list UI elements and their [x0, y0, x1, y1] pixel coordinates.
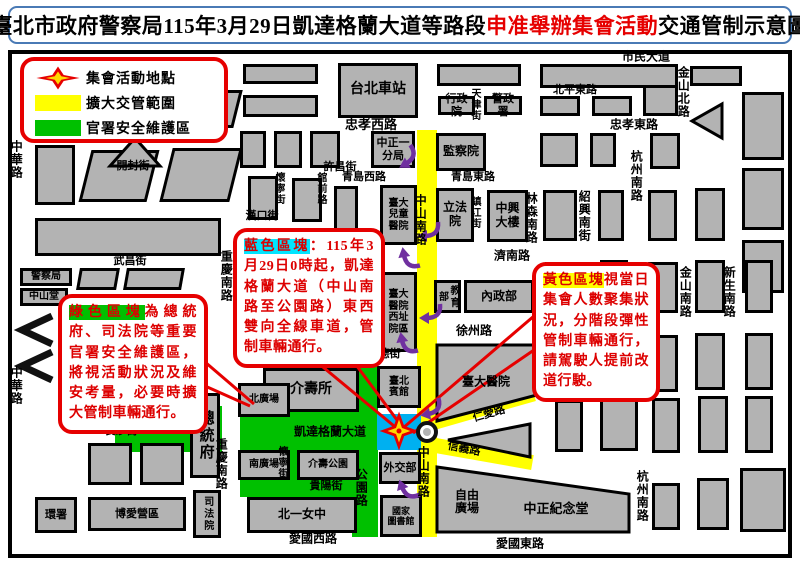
- building: [698, 396, 728, 453]
- street-label: 杭州南路: [635, 470, 648, 522]
- building-中興大樓: 中興 大樓: [487, 190, 528, 242]
- building: [140, 443, 184, 485]
- yellow-zone-callout-highlight: 黃色區塊: [543, 273, 604, 288]
- building: [697, 478, 729, 530]
- street-label: 武昌街: [114, 255, 147, 267]
- building-司法院: 司法院: [193, 490, 221, 538]
- building: [742, 168, 784, 230]
- street-label: 林森南路: [524, 192, 537, 244]
- street-label: 凱達格蘭大道: [294, 425, 366, 438]
- map-canvas: 集會活動地點 擴大交管範圍 官署安全維護區 台北車站行政院警政署中正一 分局監察…: [8, 50, 792, 558]
- street-label: 忠孝東路: [610, 118, 658, 131]
- building-環署: 環署: [35, 497, 77, 533]
- street-label: 金山北路: [676, 66, 689, 118]
- building: [648, 190, 677, 241]
- street-label: 愛國西路: [289, 532, 337, 545]
- yellow-zone-swatch: [35, 95, 81, 111]
- street-label: 青島東路: [451, 171, 495, 183]
- building: [540, 133, 578, 167]
- building: [159, 148, 242, 202]
- yellow-zone-callout: 黃色區塊視當日集會人數聚集狀況，分階段彈性管制車輛通行，請駕駛人提前改道行駛。: [532, 262, 660, 402]
- building: [35, 218, 221, 256]
- street-label: 金山南路: [678, 266, 691, 318]
- roundabout-icon: [416, 421, 438, 443]
- street-label: 濟南路: [494, 249, 530, 262]
- building-label-ntu-hospital: 臺大醫院: [462, 375, 510, 388]
- building: [35, 145, 75, 205]
- area-label-liberty-square: 自由 廣場: [455, 489, 479, 515]
- building: [243, 95, 318, 117]
- title-text: 臺北市政府警察局115年3月29日凱達格蘭大道等路段: [0, 10, 486, 40]
- building-台北車站: 台北車站: [338, 63, 418, 118]
- street-label: 忠孝西路: [345, 118, 397, 132]
- legend-row-green-zone: 官署安全維護區: [30, 115, 218, 140]
- building: [274, 131, 302, 168]
- assembly-star-icon: [30, 66, 86, 90]
- building: [745, 333, 773, 390]
- green-zone-callout-highlight: 綠色區塊: [69, 305, 145, 320]
- building: [598, 190, 624, 241]
- road-chevron-icon: [22, 316, 52, 344]
- building-內政部: 內政部: [464, 280, 534, 313]
- building: [543, 190, 577, 241]
- street-label: 重慶南路: [214, 438, 227, 490]
- building: [650, 133, 680, 169]
- building: [643, 85, 678, 116]
- street-label: 館前路: [315, 172, 326, 205]
- legend-row-assembly: 集會活動地點: [30, 65, 218, 90]
- street-label: 懷寧街: [273, 172, 284, 205]
- building: [745, 260, 773, 313]
- building-中正一分局: 中正一 分局: [371, 131, 415, 168]
- zone-blue-assembly: [377, 414, 421, 450]
- blue-zone-callout-highlight: 藍色區塊: [244, 239, 310, 254]
- legend-label: 擴大交管範圍: [86, 93, 176, 113]
- street-label: 鎮江街: [469, 196, 480, 229]
- street-label: 愛國東路: [496, 537, 544, 550]
- building-介壽公園: 介壽公園: [297, 450, 359, 480]
- blue-zone-callout-text: ：115年3月29日0時起，凱達格蘭大道（中山南路至公園路）東西雙向全線車道，管…: [244, 239, 374, 355]
- street-label: 紹興南街: [577, 190, 590, 242]
- green-zone-callout: 綠色區塊為總統府、司法院等重要官署安全維護區，將視活動狀況及維安考量，必要時擴大…: [58, 294, 208, 434]
- building: [76, 268, 120, 290]
- building: [79, 150, 160, 202]
- page-title: 臺北市政府警察局115年3月29日凱達格蘭大道等路段申准舉辦集會活動交通管制示意…: [8, 6, 792, 44]
- zone-yellow-xinyi-rd: [429, 437, 534, 470]
- street-label: 中華路: [9, 140, 22, 179]
- building: [592, 96, 632, 116]
- road-chevron-icon: [22, 352, 52, 380]
- street-label: 中山南路: [413, 194, 426, 246]
- street-label: 天津街: [469, 88, 480, 121]
- street-label: 開封街: [117, 160, 150, 172]
- green-zone-swatch: [35, 120, 81, 136]
- street-label: 北平東路: [553, 84, 597, 96]
- street-label: 中山南路: [416, 446, 429, 498]
- street-label: 徐州路: [456, 324, 492, 337]
- building: [690, 66, 742, 86]
- building: [652, 398, 680, 453]
- street-label: 貴陽街: [310, 480, 343, 492]
- building-監察院: 監察院: [436, 133, 486, 171]
- yellow-zone-callout-text: 視當日集會人數聚集狀況，分階段彈性管制車輛通行，請駕駛人提前改道行駛。: [543, 273, 649, 389]
- legend-row-yellow-zone: 擴大交管範圍: [30, 90, 218, 115]
- building: [540, 96, 580, 116]
- street-label: 新生南路: [722, 266, 735, 318]
- building-北廣場: 北廣場: [238, 383, 290, 417]
- building: [555, 400, 583, 452]
- building-警察局: 警察局: [20, 268, 72, 286]
- street-label: 懷寧街: [276, 446, 287, 479]
- building: [742, 92, 784, 160]
- building-臺大兒童醫院: 臺大 兒童 醫院: [380, 185, 417, 245]
- traffic-control-map-page: 臺北市政府警察局115年3月29日凱達格蘭大道等路段申准舉辦集會活動交通管制示意…: [0, 0, 800, 567]
- building-國家圖書館: 國家 圖書館: [380, 495, 422, 537]
- building: [695, 188, 725, 241]
- title-accent-text: 申准舉辦集會活動: [486, 10, 658, 40]
- street-label: 中華路: [9, 366, 22, 405]
- building: [652, 483, 680, 530]
- building: [88, 443, 132, 485]
- map-legend: 集會活動地點 擴大交管範圍 官署安全維護區: [20, 57, 228, 143]
- street-label: 漢口街: [246, 210, 279, 222]
- building: [240, 131, 266, 168]
- green-zone-callout-text: 為總統府、司法院等重要官署安全維護區，將視活動狀況及維安考量，必要時擴大管制車輛…: [69, 305, 197, 421]
- building-臺北賓館: 臺北 賓館: [377, 366, 421, 408]
- legend-label: 集會活動地點: [86, 68, 176, 88]
- street-label: 重慶南路: [219, 250, 232, 302]
- building: [740, 468, 786, 532]
- building: [600, 396, 638, 451]
- building-臺大醫院西址院區: 臺大 醫院 西址 院區: [380, 272, 417, 352]
- building-外交部: 外交部: [379, 452, 421, 484]
- legend-label: 官署安全維護區: [86, 118, 191, 138]
- building: [745, 396, 773, 453]
- building-北一女中: 北一女中: [247, 497, 357, 533]
- building-博愛營區: 博愛營區: [88, 497, 186, 531]
- building: [695, 333, 725, 390]
- building: [243, 64, 318, 84]
- title-text-suffix: 交通管制示意圖: [658, 10, 800, 40]
- building-教育部: 教育部: [434, 280, 461, 313]
- building-label-cks: 中正紀念堂: [523, 502, 588, 516]
- building-警政署: 警政署: [484, 96, 522, 115]
- building-triangle-left: [692, 104, 722, 138]
- building: [123, 268, 185, 290]
- street-label: 市民大道: [622, 50, 670, 63]
- building: [695, 260, 725, 313]
- street-label: 青島西路: [342, 171, 386, 183]
- building: [437, 64, 521, 86]
- street-label: 公園路: [354, 468, 367, 507]
- street-label: 杭州南路: [629, 150, 642, 202]
- building: [590, 133, 616, 167]
- blue-zone-callout: 藍色區塊：115年3月29日0時起，凱達格蘭大道（中山南路至公園路）東西雙向全線…: [233, 228, 385, 368]
